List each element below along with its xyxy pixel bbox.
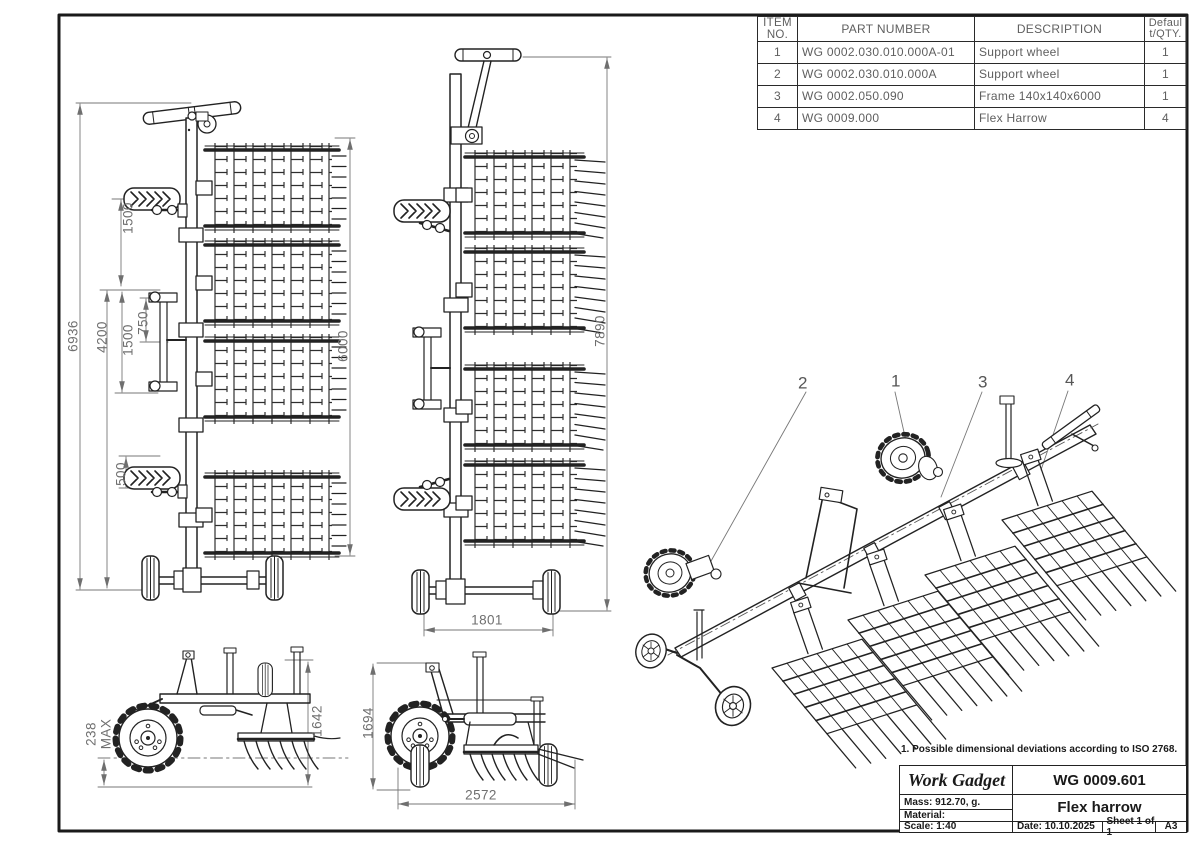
dim-linkage-750: 750 (136, 311, 150, 335)
dim-wheel-offset-500: 500 (114, 462, 128, 486)
table-row: 1 WG 0002.030.010.000A-01 Support wheel … (758, 42, 1187, 64)
cell-description: Support wheel (975, 64, 1145, 86)
view-isometric (631, 391, 1175, 768)
paper-format: A3 (1155, 821, 1187, 834)
col-description: DESCRIPTION (975, 17, 1145, 42)
cell-description: Flex Harrow (975, 108, 1145, 130)
dim-height-1642: 1642 (310, 705, 324, 737)
col-part-number: PART NUMBER (798, 17, 975, 42)
mass-field: Mass: 912.70, g. (899, 794, 1014, 811)
dim-height-1694: 1694 (361, 707, 375, 739)
view-plan-transport (76, 101, 355, 600)
title-block: Work Gadget WG 0009.601 Mass: 912.70, g.… (899, 765, 1187, 833)
parts-table-header-row: ITEM NO. PART NUMBER DESCRIPTION Default… (758, 17, 1187, 42)
col-qty: Default/QTY. (1145, 17, 1187, 42)
dim-section-spacing-1500: 1500 (121, 324, 135, 356)
dim-wheel-to-section-1500: 1500 (121, 202, 135, 234)
balloon-1: 1 (891, 373, 901, 390)
cell-description: Support wheel (975, 42, 1145, 64)
cell-item: 2 (758, 64, 798, 86)
dim-working-width-6000: 6000 (336, 330, 350, 362)
cell-part-number: WG 0002.030.010.000A-01 (798, 42, 975, 64)
dim-length-2572: 2572 (465, 788, 497, 802)
balloon-3: 3 (978, 374, 988, 391)
cell-part-number: WG 0009.000 (798, 108, 975, 130)
parts-table: ITEM NO. PART NUMBER DESCRIPTION Default… (757, 16, 1187, 130)
table-row: 4 WG 0009.000 Flex Harrow 4 (758, 108, 1187, 130)
view-plan-working (394, 49, 611, 636)
dim-overall-height-6936: 6936 (66, 320, 80, 352)
drawing-sheet: 6936 1500 4200 1500 750 500 6000 7890 18… (0, 0, 1200, 848)
cell-item: 1 (758, 42, 798, 64)
dim-sections-span-4200: 4200 (95, 321, 109, 353)
cell-qty: 1 (1145, 86, 1187, 108)
cell-part-number: WG 0002.030.010.000A (798, 64, 975, 86)
drawing-number: WG 0009.601 (1012, 765, 1187, 795)
company-logo: Work Gadget (899, 765, 1014, 795)
drawing-title: Flex harrow (1012, 794, 1187, 823)
col-item-no: ITEM NO. (758, 17, 798, 42)
cell-description: Frame 140x140x6000 (975, 86, 1145, 108)
balloon-4: 4 (1065, 372, 1075, 389)
balloon-2: 2 (798, 375, 808, 392)
dim-overall-7890: 7890 (593, 315, 607, 347)
cell-part-number: WG 0002.050.090 (798, 86, 975, 108)
table-row: 3 WG 0002.050.090 Frame 140x140x6000 1 (758, 86, 1187, 108)
cell-qty: 1 (1145, 64, 1187, 86)
dim-depth-238: 238 (84, 722, 98, 746)
table-row: 2 WG 0002.030.010.000A Support wheel 1 (758, 64, 1187, 86)
tolerance-note: 1. Possible dimensional deviations accor… (901, 744, 1177, 755)
cell-qty: 1 (1145, 42, 1187, 64)
dim-track-1801: 1801 (471, 613, 503, 627)
view-side-working (373, 652, 583, 809)
dim-depth-max-label: MAX (99, 719, 113, 749)
scale-field: Scale: 1:40 (899, 821, 1014, 834)
cell-qty: 4 (1145, 108, 1187, 130)
sheet-field: Sheet 1 of 1 (1102, 821, 1157, 834)
cell-item: 4 (758, 108, 798, 130)
cell-item: 3 (758, 86, 798, 108)
date-field: Date: 10.10.2025 (1012, 821, 1103, 834)
